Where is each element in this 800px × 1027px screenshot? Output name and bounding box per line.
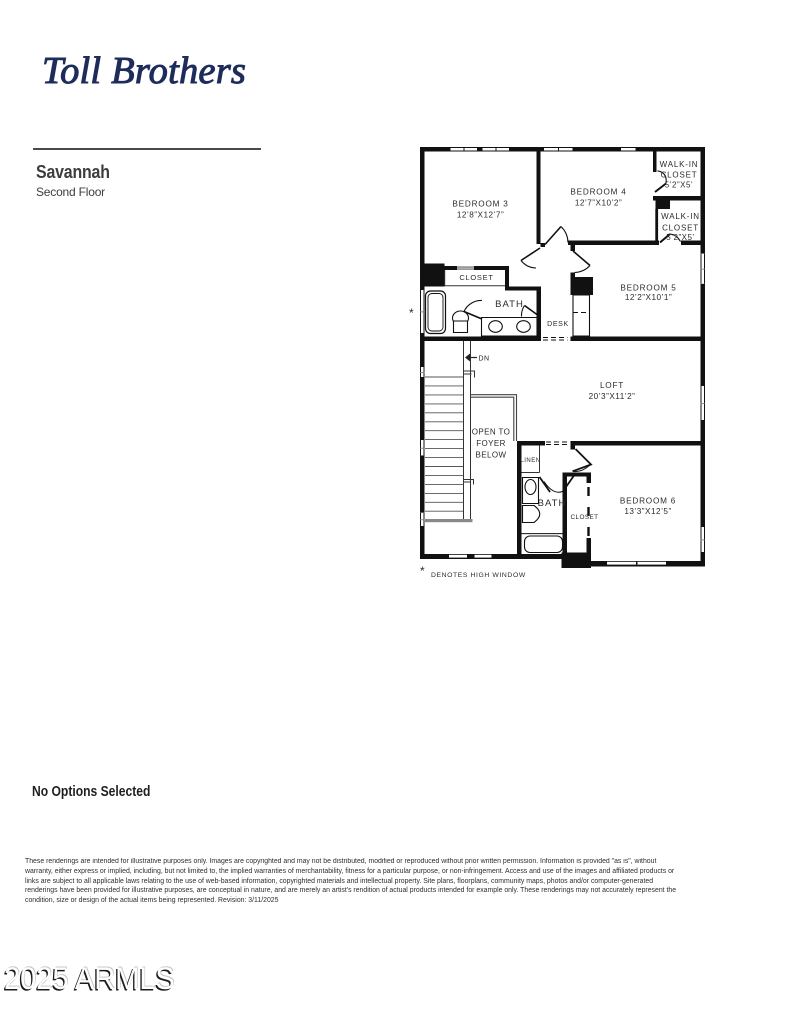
svg-text:DENOTES HIGH WINDOW: DENOTES HIGH WINDOW [431,572,526,579]
svg-text:BEDROOM 3: BEDROOM 3 [452,200,508,209]
svg-text:WALK-IN: WALK-IN [661,212,700,221]
svg-text:DESK: DESK [547,321,569,328]
svg-text:CLOSET: CLOSET [571,514,599,521]
svg-text:13’3”X12’5”: 13’3”X12’5” [624,507,671,516]
svg-text:5’2”X5’: 5’2”X5’ [665,181,693,190]
svg-text:DN: DN [479,356,490,363]
svg-text:BATH: BATH [495,299,524,310]
svg-text:12’7”X10’2”: 12’7”X10’2” [575,199,622,208]
svg-text:WALK-IN: WALK-IN [660,160,699,169]
svg-text:CLOSET: CLOSET [459,273,493,282]
svg-text:LINEN: LINEN [520,458,540,464]
svg-text:CLOSET: CLOSET [662,224,699,233]
svg-text:BEDROOM 6: BEDROOM 6 [620,497,676,506]
svg-text:BEDROOM 4: BEDROOM 4 [570,188,626,197]
svg-text:CLOSET: CLOSET [661,171,698,180]
svg-text:12’8”X12’7”: 12’8”X12’7” [457,211,504,220]
svg-text:BATH: BATH [538,498,567,509]
svg-text:OPEN TO: OPEN TO [472,428,511,437]
svg-text:LOFT: LOFT [600,381,624,390]
svg-text:FOYER: FOYER [476,439,506,448]
svg-text:5’2”X5’: 5’2”X5’ [666,233,694,242]
svg-text:*: * [409,306,414,320]
svg-text:20’3”X11’2”: 20’3”X11’2” [589,392,636,401]
svg-text:*: * [420,564,425,578]
svg-text:12’2”X10’1”: 12’2”X10’1” [625,293,672,302]
svg-text:BELOW: BELOW [476,451,507,460]
svg-text:BEDROOM 5: BEDROOM 5 [620,284,676,293]
